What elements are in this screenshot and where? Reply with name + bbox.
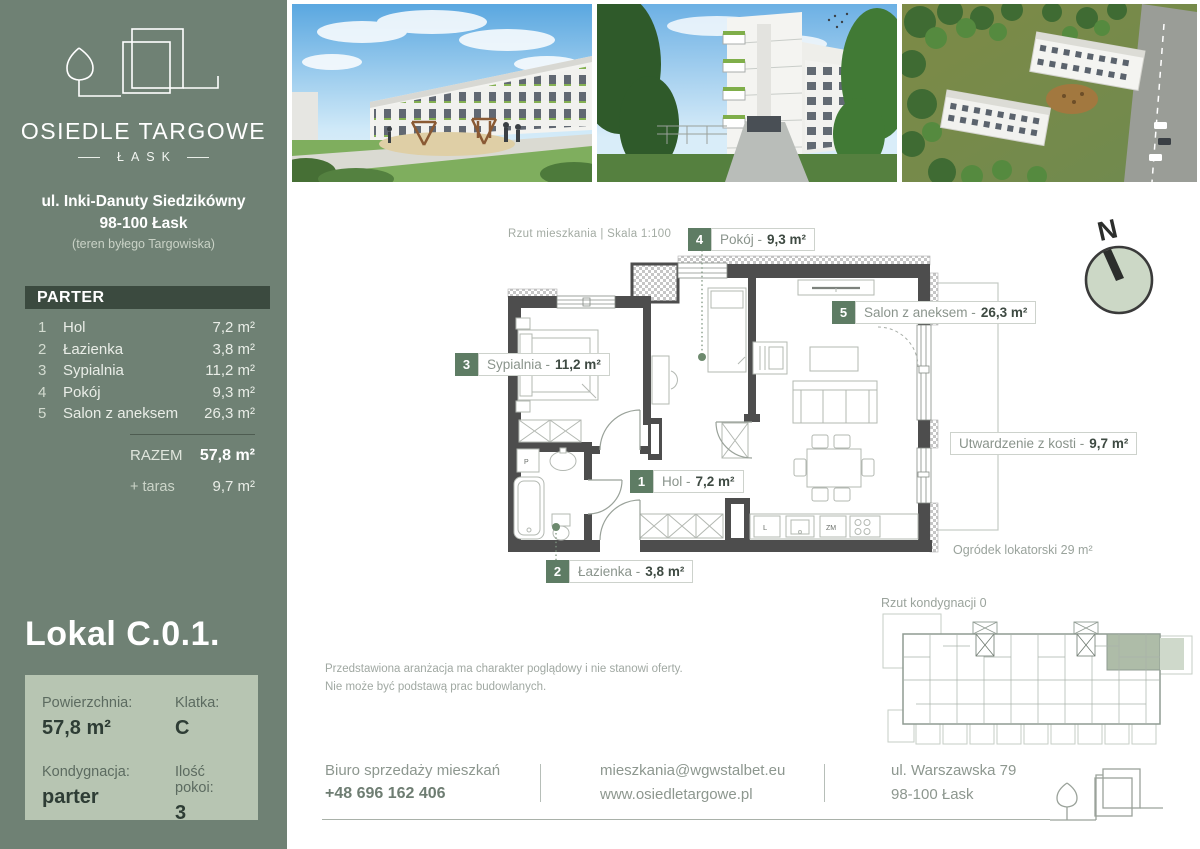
brand-name: OSIEDLE TARGOWE — [0, 118, 287, 145]
project-address-line2: 98-100 Łask — [0, 215, 287, 233]
project-address-note: (teren byłego Targowiska) — [0, 237, 287, 251]
room-number-badge: 4 — [688, 228, 711, 251]
room-list: 1 Hol 7,2 m² 2 Łazienka 3,8 m² 3 Sypialn… — [25, 317, 255, 425]
footer-sales-office: Biuro sprzedaży mieszkań +48 696 162 406 — [325, 762, 500, 803]
unit-title: Lokal C.0.1. — [25, 615, 265, 654]
project-address-line1: ul. Inki-Danuty Siedzikówny — [0, 193, 287, 211]
footer-divider — [540, 764, 541, 802]
room-row-lazienka: 2 Łazienka 3,8 m² — [25, 339, 255, 361]
total-area-row: RAZEM 57,8 m² — [130, 447, 255, 465]
unit-info-panel: Powierzchnia: 57,8 m² Klatka: C Kondygna… — [25, 675, 258, 820]
floor-header: PARTER — [25, 286, 270, 309]
footer-contact: mieszkania@wgwstalbet.eu www.osiedletarg… — [600, 762, 785, 803]
room-row-salon: 5 Salon z aneksem 26,3 m² — [25, 403, 255, 425]
floor-plan: L ZM P — [495, 215, 1110, 595]
company-address-line2: 98-100 Łask — [891, 786, 1016, 803]
room-number-badge: 2 — [546, 560, 569, 583]
disclaimer-line1: Przedstawiona aranżacja ma charakter pog… — [325, 660, 705, 678]
door-niche — [651, 424, 659, 454]
kitchen-duct — [731, 504, 744, 538]
photo-building-street-view — [597, 4, 897, 182]
room-row-sypialnia: 3 Sypialnia 11,2 m² — [25, 360, 255, 382]
floor-overview-plan — [878, 612, 1198, 754]
washer-code: P — [524, 459, 529, 466]
balcony-door-swing — [878, 327, 918, 367]
company-address-line1: ul. Warszawska 79 — [891, 762, 1016, 779]
room-number-badge: 5 — [832, 301, 855, 324]
disclaimer-line2: Nie może być podstawą prac budowlanych. — [325, 678, 705, 696]
dishwasher-code: ZM — [826, 525, 836, 532]
fridge-code: L — [763, 523, 767, 532]
footer-rule — [322, 819, 1050, 820]
plan-label-hol: 1 Hol -7,2 m² — [630, 470, 744, 493]
footer-logo-icon — [1050, 758, 1170, 824]
plan-label-lazienka: 2 Łazienka -3,8 m² — [546, 560, 693, 583]
sidebar: OSIEDLE TARGOWE ŁASK ul. Inki-Danuty Sie… — [0, 0, 287, 849]
sum-divider — [130, 434, 255, 435]
room-number-badge: 1 — [630, 470, 653, 493]
dash-right — [187, 157, 209, 158]
terrace-area-row: + taras 9,7 m² — [130, 478, 255, 495]
photo-aerial-view — [902, 4, 1197, 182]
info-floor: Kondygnacja: parter — [42, 764, 175, 825]
terrace-label: Utwardzenie z kosti -9,7 m² — [950, 432, 1137, 455]
room-row-pokoj: 4 Pokój 9,3 m² — [25, 382, 255, 404]
footer-divider — [824, 764, 825, 802]
contact-email: mieszkania@wgwstalbet.eu — [600, 762, 785, 779]
info-area: Powierzchnia: 57,8 m² — [42, 695, 175, 740]
info-room-count: Ilość pokoi: 3 — [175, 764, 247, 825]
contact-website: www.osiedletargowe.pl — [600, 786, 785, 803]
disclaimer: Przedstawiona aranżacja ma charakter pog… — [325, 660, 705, 696]
overview-caption: Rzut kondygnacji 0 — [881, 596, 987, 610]
dash-left — [78, 157, 100, 158]
footer-address: ul. Warszawska 79 98-100 Łask — [891, 762, 1016, 803]
brand-logo-icon — [50, 25, 235, 100]
room-number-badge: 3 — [455, 353, 478, 376]
brand-city: ŁASK — [0, 150, 287, 164]
garden-note: Ogródek lokatorski 29 m² — [953, 543, 1093, 557]
photo-playground-view — [292, 4, 592, 182]
apartment-flyer: OSIEDLE TARGOWE ŁASK ul. Inki-Danuty Sie… — [0, 0, 1200, 849]
sales-office-label: Biuro sprzedaży mieszkań — [325, 762, 500, 779]
plan-label-sypialnia: 3 Sypialnia -11,2 m² — [455, 353, 610, 376]
plan-label-pokoj: 4 Pokój -9,3 m² — [688, 228, 815, 251]
info-staircase: Klatka: C — [175, 695, 247, 740]
plan-label-salon: 5 Salon z aneksem -26,3 m² — [832, 301, 1036, 324]
sales-phone: +48 696 162 406 — [325, 785, 500, 803]
room-row-hol: 1 Hol 7,2 m² — [25, 317, 255, 339]
